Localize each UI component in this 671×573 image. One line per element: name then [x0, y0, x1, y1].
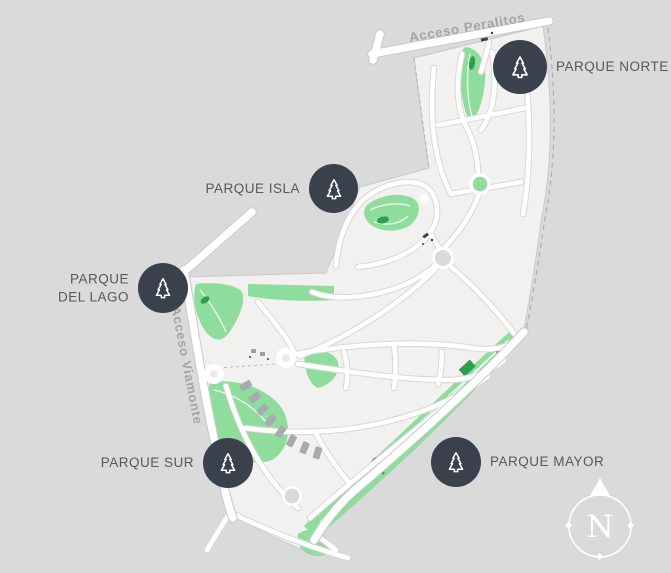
parque-del-lago-badge[interactable]	[138, 263, 188, 313]
compass-north-arrow	[590, 478, 610, 496]
parque-mayor-badge[interactable]	[431, 437, 481, 487]
parque-isla-label: PARQUE ISLA	[205, 180, 300, 198]
marker-parque-del-lago: PARQUE DEL LAGO	[138, 263, 188, 313]
parque-del-lago-label: PARQUE DEL LAGO	[41, 270, 129, 305]
parque-sur-badge[interactable]	[203, 438, 253, 488]
masterplan-map: Acceso Peralitos Acceso Viamonte PARQUE …	[0, 0, 671, 573]
compass-rose: N	[556, 468, 644, 570]
pine-tree-icon	[507, 54, 533, 80]
parque-norte-badge[interactable]	[493, 40, 547, 94]
pine-tree-icon	[216, 451, 240, 475]
marker-parque-mayor: PARQUE MAYOR	[431, 437, 481, 487]
marker-parque-norte: PARQUE NORTE	[493, 40, 547, 94]
pine-tree-icon	[322, 177, 346, 201]
pine-tree-icon	[444, 450, 468, 474]
parque-sur-label: PARQUE SUR	[101, 454, 194, 472]
marker-parque-sur: PARQUE SUR	[203, 438, 253, 488]
marker-parque-isla: PARQUE ISLA	[309, 164, 358, 213]
compass-north-letter: N	[586, 509, 613, 545]
parque-isla-badge[interactable]	[309, 164, 358, 213]
parque-norte-label: PARQUE NORTE	[556, 58, 669, 76]
pine-tree-icon	[151, 276, 175, 300]
